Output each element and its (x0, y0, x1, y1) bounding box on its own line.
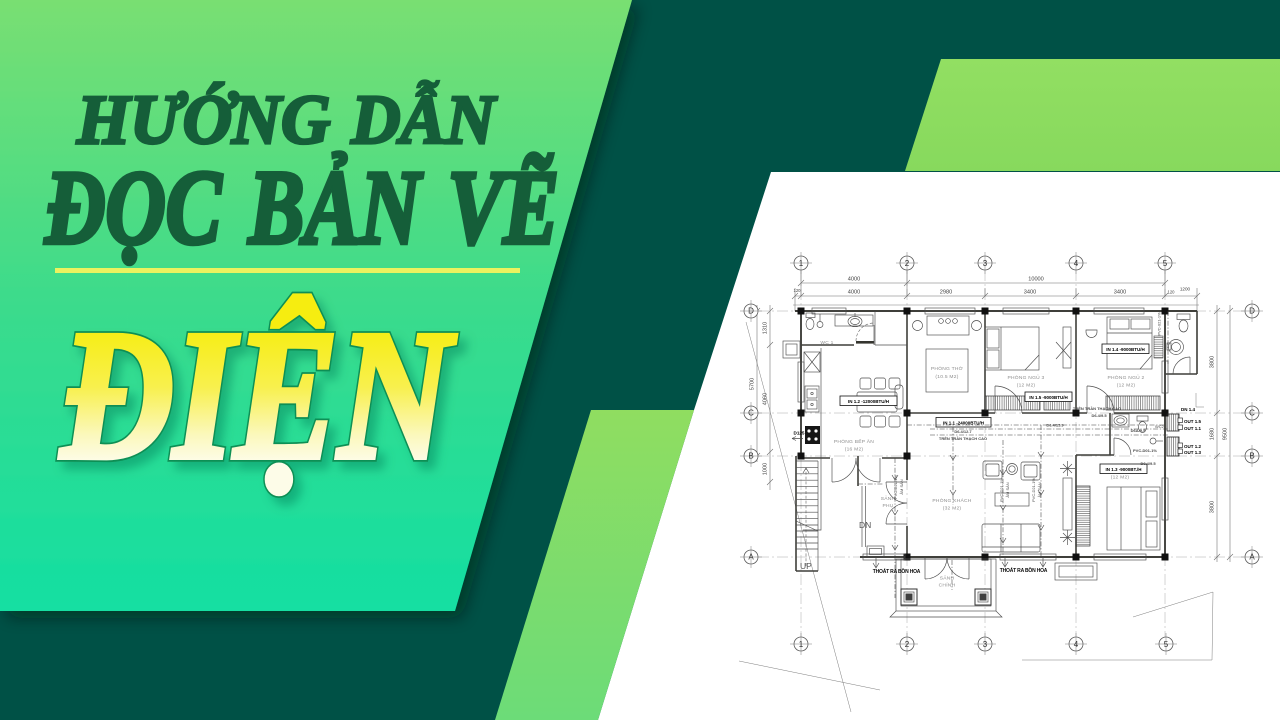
svg-text:PHỤ: PHỤ (882, 503, 893, 509)
svg-text:4: 4 (1074, 259, 1079, 268)
svg-text:ÂM SÀN: ÂM SÀN (1037, 482, 1042, 497)
svg-text:PHÒNG NGỦ 2: PHÒNG NGỦ 2 (1108, 374, 1145, 381)
svg-text:PHÒNG BẾP ĂN: PHÒNG BẾP ĂN (834, 438, 874, 445)
svg-text:THOÁT RA BỒN HOA: THOÁT RA BỒN HOA (873, 568, 921, 575)
svg-text:3: 3 (983, 259, 988, 268)
svg-text:3: 3 (983, 640, 988, 649)
svg-text:5: 5 (1164, 640, 1169, 649)
svg-text:(12 M2): (12 M2) (1117, 383, 1136, 389)
svg-text:TRÊN TRẦN THẠCH CAO: TRÊN TRẦN THẠCH CAO (939, 436, 987, 441)
svg-text:UP: UP (800, 561, 812, 571)
svg-text:9500: 9500 (1223, 428, 1229, 440)
svg-text:10000: 10000 (1028, 277, 1044, 283)
svg-text:120: 120 (1168, 290, 1176, 295)
svg-text:D6.4/9.5: D6.4/9.5 (1140, 461, 1156, 466)
svg-text:(12 M2): (12 M2) (1111, 475, 1130, 481)
svg-text:2: 2 (905, 259, 910, 268)
svg-text:D125: D125 (794, 431, 805, 436)
svg-text:OUT 1.3: OUT 1.3 (1184, 450, 1202, 455)
svg-text:DN 1.4: DN 1.4 (1181, 407, 1196, 412)
svg-text:1000: 1000 (763, 463, 769, 475)
svg-text:2980: 2980 (940, 290, 952, 296)
svg-text:OUT 1.1: OUT 1.1 (1184, 426, 1202, 431)
svg-text:B: B (1249, 452, 1254, 461)
svg-text:D6.4/12.7: D6.4/12.7 (954, 429, 972, 434)
svg-text:3400: 3400 (1114, 290, 1126, 296)
svg-text:IN 1.2 -12000BTU/H: IN 1.2 -12000BTU/H (848, 399, 889, 404)
svg-text:PVC-D21-1%: PVC-D21-1% (999, 478, 1004, 502)
svg-text:PVC-021-1%: PVC-021-1% (1157, 312, 1162, 336)
svg-text:TRÊN TRẦN THẠCH CAO: TRÊN TRẦN THẠCH CAO (1073, 406, 1121, 411)
svg-text:1310: 1310 (763, 322, 769, 334)
svg-text:PVC-D21-1%: PVC-D21-1% (1031, 478, 1036, 502)
svg-text:THOÁT RA BỒN HOA: THOÁT RA BỒN HOA (1000, 567, 1048, 574)
svg-text:DN: DN (859, 520, 871, 530)
svg-text:4000: 4000 (848, 277, 860, 283)
svg-text:4000: 4000 (848, 290, 860, 296)
svg-text:A: A (748, 553, 754, 562)
svg-text:PHÒNG THỜ: PHÒNG THỜ (931, 365, 964, 372)
svg-text:3400: 3400 (1024, 290, 1036, 296)
svg-text:IN 1.1 -24000BTU/H: IN 1.1 -24000BTU/H (943, 420, 984, 425)
svg-text:5700: 5700 (750, 378, 756, 390)
svg-text:2: 2 (905, 640, 910, 649)
svg-text:C: C (1249, 409, 1255, 418)
svg-text:OUT 1.5: OUT 1.5 (1184, 419, 1202, 424)
svg-text:1680: 1680 (1210, 428, 1216, 440)
svg-text:C: C (748, 409, 754, 418)
svg-text:5: 5 (1163, 259, 1168, 268)
svg-text:OUT 1.2: OUT 1.2 (1184, 444, 1202, 449)
svg-text:B: B (748, 452, 753, 461)
svg-text:3800: 3800 (1210, 501, 1216, 513)
svg-text:120: 120 (794, 288, 802, 293)
svg-text:IN 1.5 -9000BTU/H: IN 1.5 -9000BTU/H (1029, 395, 1068, 400)
svg-text:IN 1.4 -9000BTU/H: IN 1.4 -9000BTU/H (1106, 347, 1145, 352)
svg-text:(32 M2): (32 M2) (943, 506, 962, 512)
svg-text:1200: 1200 (1180, 287, 1191, 292)
svg-text:ÂM SÀN: ÂM SÀN (1005, 482, 1010, 497)
svg-text:SẢNH: SẢNH (940, 575, 955, 582)
svg-text:(16 M2): (16 M2) (845, 447, 864, 453)
svg-text:A: A (1249, 553, 1255, 562)
svg-text:PHÒNG KHÁCH: PHÒNG KHÁCH (932, 497, 971, 504)
svg-text:3800: 3800 (1210, 356, 1216, 368)
svg-text:CHÍNH: CHÍNH (939, 582, 956, 589)
svg-text:D: D (1249, 307, 1255, 316)
svg-text:D: D (748, 307, 754, 316)
svg-text:PHÒNG NGỦ 3: PHÒNG NGỦ 3 (1008, 374, 1045, 381)
svg-text:PVC-D21-1%: PVC-D21-1% (893, 475, 898, 499)
svg-text:(12 M2): (12 M2) (1017, 383, 1036, 389)
svg-text:IN 1.3 -9000BT./H: IN 1.3 -9000BT./H (1105, 467, 1141, 472)
svg-text:D6.4/9.5: D6.4/9.5 (1091, 413, 1107, 418)
svg-text:ÂM SÀN: ÂM SÀN (899, 479, 904, 494)
svg-text:PVC-D01-1%: PVC-D01-1% (1133, 448, 1157, 453)
svg-text:(10.5 M2): (10.5 M2) (935, 374, 958, 380)
svg-text:4: 4 (1074, 640, 1079, 649)
svg-text:WC 1: WC 1 (820, 340, 833, 346)
svg-text:1: 1 (799, 640, 804, 649)
svg-text:1: 1 (799, 259, 804, 268)
